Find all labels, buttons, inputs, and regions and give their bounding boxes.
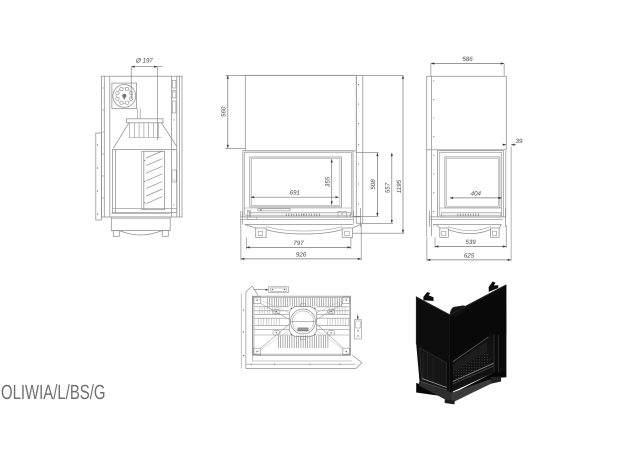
svg-text:586: 586 [462,56,473,63]
svg-text:508: 508 [370,179,377,190]
svg-text:OLIWIA/L/BS/G: OLIWIA/L/BS/G [1,381,106,404]
svg-text:1195: 1195 [396,179,403,193]
svg-text:404: 404 [471,190,482,197]
svg-text:539: 539 [465,239,476,246]
svg-text:926: 926 [296,252,307,259]
svg-text:Ø 197: Ø 197 [135,58,153,65]
svg-text:39: 39 [516,138,523,145]
svg-text:797: 797 [293,240,304,247]
svg-text:355: 355 [325,176,332,187]
svg-text:560: 560 [221,106,228,117]
svg-text:625: 625 [464,253,475,260]
svg-text:691: 691 [290,190,300,197]
svg-text:557: 557 [385,182,392,193]
